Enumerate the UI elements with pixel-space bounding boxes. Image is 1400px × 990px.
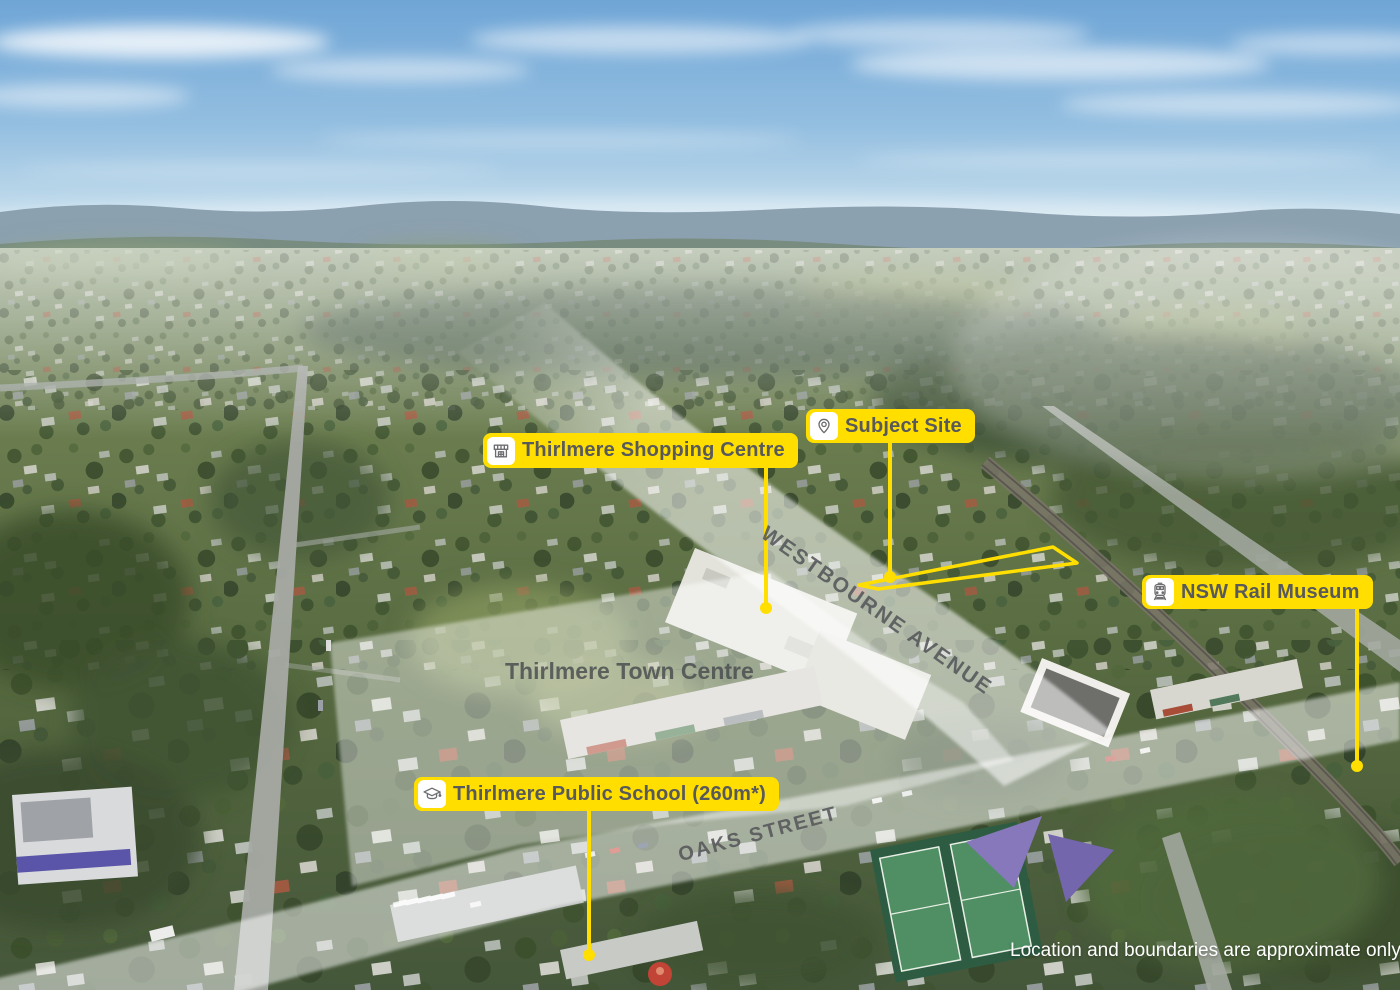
location-pin-icon xyxy=(810,412,838,440)
callout-shopping-centre: Thirlmere Shopping Centre xyxy=(483,433,798,468)
storefront-icon xyxy=(487,437,515,465)
graduation-cap-icon xyxy=(418,780,446,808)
train-icon xyxy=(1146,578,1174,606)
callout-rail-museum: NSW Rail Museum xyxy=(1142,575,1373,609)
callout-text: NSW Rail Museum xyxy=(1181,581,1360,604)
disclaimer-text: Location and boundaries are approximate … xyxy=(1010,940,1400,962)
aerial-marketing-map: WESTBOURNE AVENUE OAKS STREET Thirlmere … xyxy=(0,0,1400,990)
callout-subject-site: Subject Site xyxy=(806,409,975,443)
area-label-town-centre: Thirlmere Town Centre xyxy=(505,658,754,685)
callout-text: Thirlmere Public School (260m*) xyxy=(453,783,766,806)
callout-public-school: Thirlmere Public School (260m*) xyxy=(414,777,779,811)
callout-text: Subject Site xyxy=(845,415,962,438)
callout-text: Thirlmere Shopping Centre xyxy=(522,439,785,462)
